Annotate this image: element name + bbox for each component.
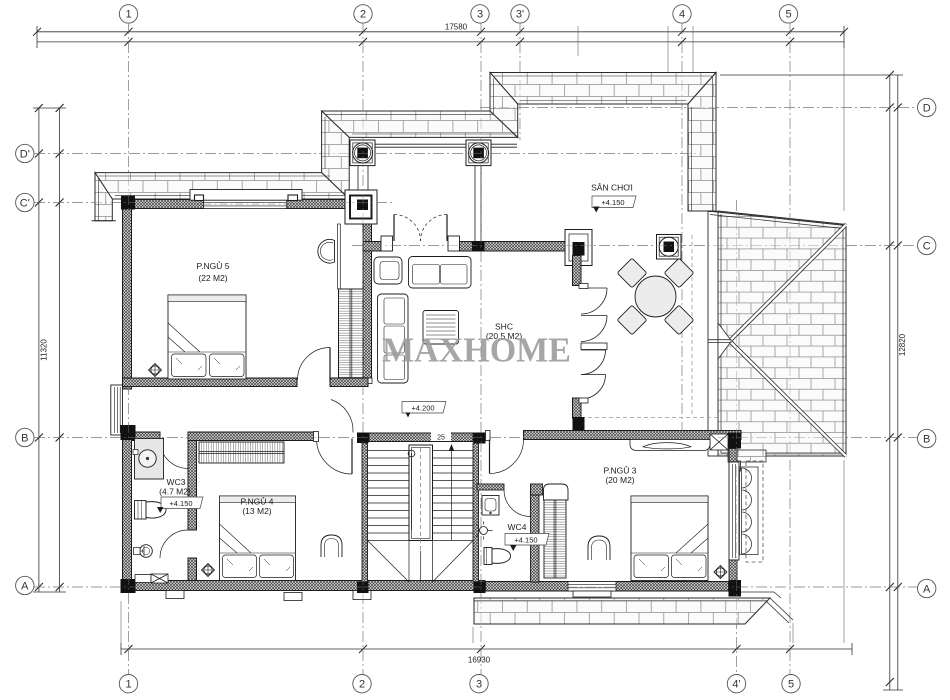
svg-text:+4.200: +4.200: [411, 404, 434, 413]
svg-text:+4.150: +4.150: [601, 198, 624, 207]
svg-text:(20 M2): (20 M2): [605, 475, 634, 485]
svg-text:4: 4: [679, 9, 685, 21]
svg-text:P.NGỦ 4: P.NGỦ 4: [241, 496, 274, 507]
svg-text:C: C: [923, 240, 931, 252]
svg-text:C': C': [20, 197, 30, 209]
svg-text:WC3: WC3: [167, 477, 186, 487]
svg-text:2: 2: [360, 9, 366, 21]
svg-text:A: A: [923, 583, 931, 595]
svg-text:1: 1: [125, 9, 131, 21]
svg-text:WC4: WC4: [508, 522, 527, 532]
svg-text:B: B: [923, 433, 930, 445]
svg-text:B: B: [21, 432, 28, 444]
svg-text:D: D: [923, 102, 931, 114]
svg-text:3': 3': [516, 9, 524, 21]
svg-text:3: 3: [477, 9, 483, 21]
svg-text:25: 25: [437, 435, 445, 442]
svg-text:5: 5: [788, 679, 794, 691]
svg-text:P.NGỦ 3: P.NGỦ 3: [604, 465, 637, 476]
svg-text:1: 1: [125, 679, 131, 691]
svg-text:5: 5: [785, 9, 791, 21]
svg-text:D': D': [20, 148, 30, 160]
svg-text:A: A: [21, 580, 29, 592]
svg-text:SÂN CHƠI: SÂN CHƠI: [591, 183, 633, 193]
svg-text:12820: 12820: [898, 333, 907, 356]
svg-text:11320: 11320: [40, 339, 49, 361]
svg-text:(13 M2): (13 M2): [242, 506, 271, 516]
svg-text:2: 2: [359, 679, 365, 691]
svg-text:(4.7 M2): (4.7 M2): [159, 487, 191, 497]
svg-text:4': 4': [732, 679, 740, 691]
svg-text:(22 M2): (22 M2): [198, 273, 227, 283]
svg-text:3: 3: [476, 679, 482, 691]
svg-text:MAXHOME: MAXHOME: [382, 331, 571, 370]
svg-text:16930: 16930: [468, 656, 491, 665]
svg-text:+4.150: +4.150: [514, 536, 537, 545]
svg-text:17580: 17580: [445, 23, 468, 32]
svg-text:+4.150: +4.150: [169, 499, 192, 508]
svg-text:P.NGỦ 5: P.NGỦ 5: [197, 260, 230, 271]
